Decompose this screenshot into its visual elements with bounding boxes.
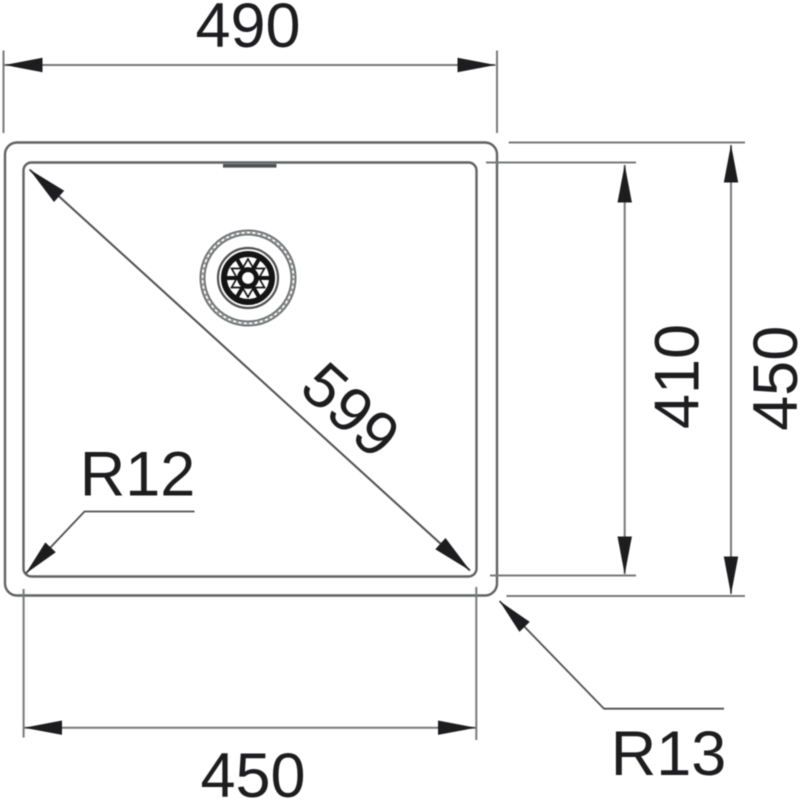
svg-text:490: 490 bbox=[195, 0, 300, 61]
svg-text:450: 450 bbox=[741, 326, 800, 431]
svg-text:R13: R13 bbox=[611, 719, 727, 789]
svg-text:R12: R12 bbox=[80, 440, 196, 510]
svg-text:450: 450 bbox=[200, 741, 305, 800]
svg-text:410: 410 bbox=[642, 324, 712, 429]
